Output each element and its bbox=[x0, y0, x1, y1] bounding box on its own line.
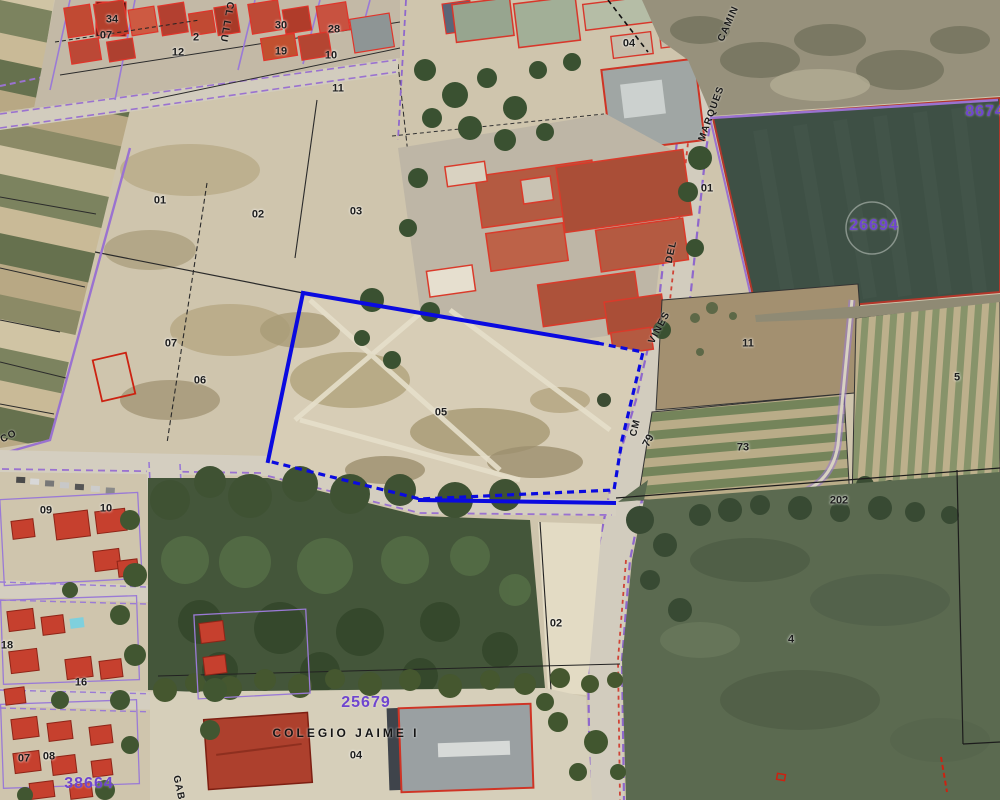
map-label-parcel: 05 bbox=[435, 408, 447, 419]
map-label-ref: 8674 bbox=[965, 104, 1000, 120]
map-label-street: VINES bbox=[647, 310, 672, 346]
map-label-ref: 26694 bbox=[849, 218, 899, 234]
map-label-street: DEL bbox=[665, 240, 680, 265]
map-label-parcel: 09 bbox=[40, 506, 52, 517]
map-label-parcel: 08 bbox=[43, 752, 55, 763]
map-label-parcel: 34 bbox=[106, 15, 118, 26]
map-label-parcel: 11 bbox=[742, 339, 754, 350]
map-label-ref: 25679 bbox=[341, 695, 391, 711]
map-label-parcel: 5 bbox=[954, 373, 960, 384]
map-label-parcel: 18 bbox=[1, 641, 13, 652]
map-label-parcel: 02 bbox=[550, 619, 562, 630]
map-label-street: CO bbox=[0, 429, 19, 446]
map-label-street: CL LLU bbox=[217, 1, 234, 43]
map-label-parcel: 07 bbox=[165, 339, 177, 350]
map-label-parcel: 10 bbox=[100, 504, 112, 515]
map-label-parcel: 06 bbox=[194, 376, 206, 387]
map-label-street: CAMIN bbox=[717, 5, 742, 44]
map-label-parcel: 01 bbox=[701, 184, 713, 195]
map-label-street: GAB bbox=[170, 775, 185, 800]
map-label-street: MARQUES bbox=[697, 85, 726, 143]
map-label-parcel: 28 bbox=[328, 25, 340, 36]
map-label-parcel: 16 bbox=[75, 678, 87, 689]
map-label-street: CM bbox=[629, 418, 643, 437]
aerial-cadastral-map[interactable]: 3407212301928101104010102030706051179732… bbox=[0, 0, 1000, 800]
map-label-parcel: 07 bbox=[18, 754, 30, 765]
map-label-parcel: 2 bbox=[193, 33, 199, 44]
map-label-parcel: 01 bbox=[154, 196, 166, 207]
map-label-parcel: 04 bbox=[623, 39, 635, 50]
map-label-parcel: 07 bbox=[100, 31, 112, 42]
map-label-parcel: 10 bbox=[325, 51, 337, 62]
map-label-parcel: 19 bbox=[275, 47, 287, 58]
map-label-parcel: 73 bbox=[737, 443, 749, 454]
map-label-parcel: 202 bbox=[830, 496, 848, 507]
map-label-poi: COLEGIO JAIME I bbox=[272, 727, 419, 739]
map-label-parcel: 03 bbox=[350, 207, 362, 218]
map-label-parcel: 02 bbox=[252, 210, 264, 221]
map-label-parcel: 12 bbox=[172, 48, 184, 59]
map-label-parcel: 11 bbox=[332, 84, 344, 95]
map-label-parcel: 30 bbox=[275, 21, 287, 32]
map-label-ref: 38664 bbox=[64, 776, 114, 792]
map-labels: 3407212301928101104010102030706051179732… bbox=[0, 0, 1000, 800]
map-label-parcel: 79 bbox=[641, 433, 656, 449]
map-label-parcel: 4 bbox=[788, 635, 794, 646]
map-label-parcel: 04 bbox=[350, 751, 362, 762]
